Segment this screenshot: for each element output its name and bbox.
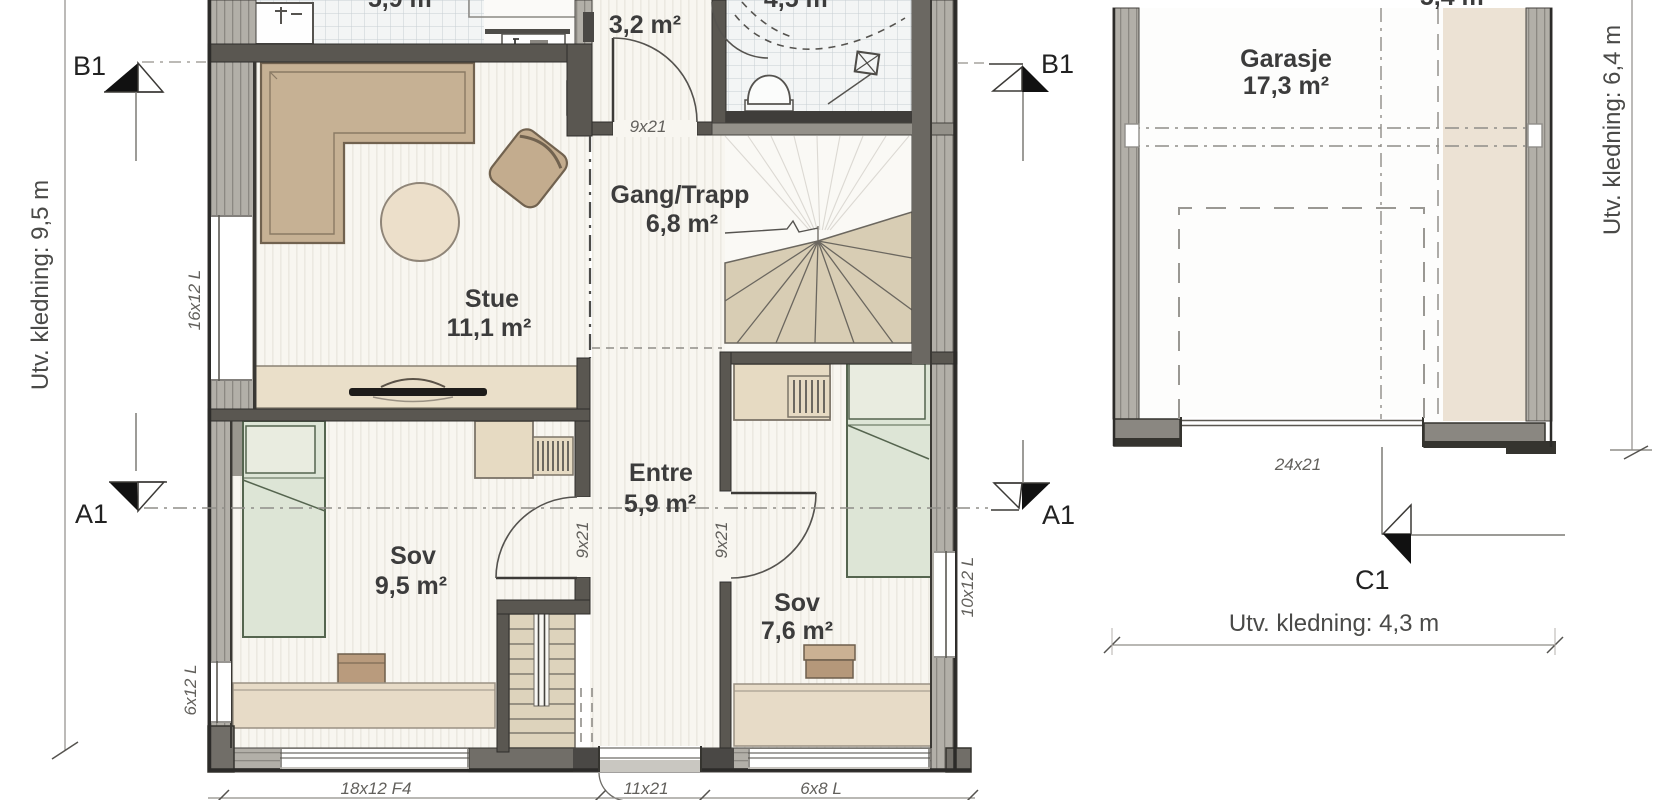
svg-text:9,5 m²: 9,5 m² (375, 572, 447, 600)
svg-text:17,3 m²: 17,3 m² (1243, 72, 1329, 100)
svg-text:5,4 m²: 5,4 m² (1420, 0, 1492, 11)
svg-text:B1: B1 (73, 51, 106, 81)
svg-text:10x12 L: 10x12 L (958, 557, 977, 618)
svg-text:18x12 F4: 18x12 F4 (341, 779, 412, 798)
svg-text:11x21: 11x21 (623, 779, 668, 798)
svg-text:4,5 m²: 4,5 m² (764, 0, 836, 13)
svg-text:A1: A1 (75, 499, 108, 529)
svg-text:9x21: 9x21 (712, 522, 731, 559)
svg-text:Gang/Trapp: Gang/Trapp (611, 181, 750, 209)
svg-text:6,8 m²: 6,8 m² (646, 210, 718, 238)
svg-text:9x21: 9x21 (573, 522, 592, 559)
svg-text:3,2 m²: 3,2 m² (609, 11, 681, 39)
svg-text:16x12 L: 16x12 L (185, 270, 204, 331)
svg-text:Sov: Sov (774, 589, 820, 617)
svg-text:24x21: 24x21 (1274, 455, 1321, 474)
svg-text:Stue: Stue (465, 285, 519, 313)
svg-text:Utv. kledning: 4,3 m: Utv. kledning: 4,3 m (1229, 610, 1439, 637)
svg-text:6x8 L: 6x8 L (800, 779, 842, 798)
svg-text:C1: C1 (1355, 565, 1390, 595)
svg-text:11,1 m²: 11,1 m² (447, 314, 532, 342)
svg-text:6x12 L: 6x12 L (181, 664, 200, 715)
svg-text:Utv. kledning: 9,5 m: Utv. kledning: 9,5 m (27, 180, 54, 390)
svg-text:7,6 m²: 7,6 m² (761, 617, 833, 645)
svg-text:9x21: 9x21 (630, 117, 667, 136)
svg-text:B1: B1 (1041, 49, 1074, 79)
svg-text:Utv. kledning: 6,4 m: Utv. kledning: 6,4 m (1599, 25, 1626, 235)
svg-text:5,9 m²: 5,9 m² (624, 490, 696, 518)
svg-text:Sov: Sov (390, 542, 436, 570)
svg-text:Entre: Entre (629, 459, 693, 487)
svg-text:5,9 m²: 5,9 m² (368, 0, 440, 13)
svg-text:Garasje: Garasje (1240, 45, 1332, 73)
svg-text:A1: A1 (1042, 500, 1075, 530)
